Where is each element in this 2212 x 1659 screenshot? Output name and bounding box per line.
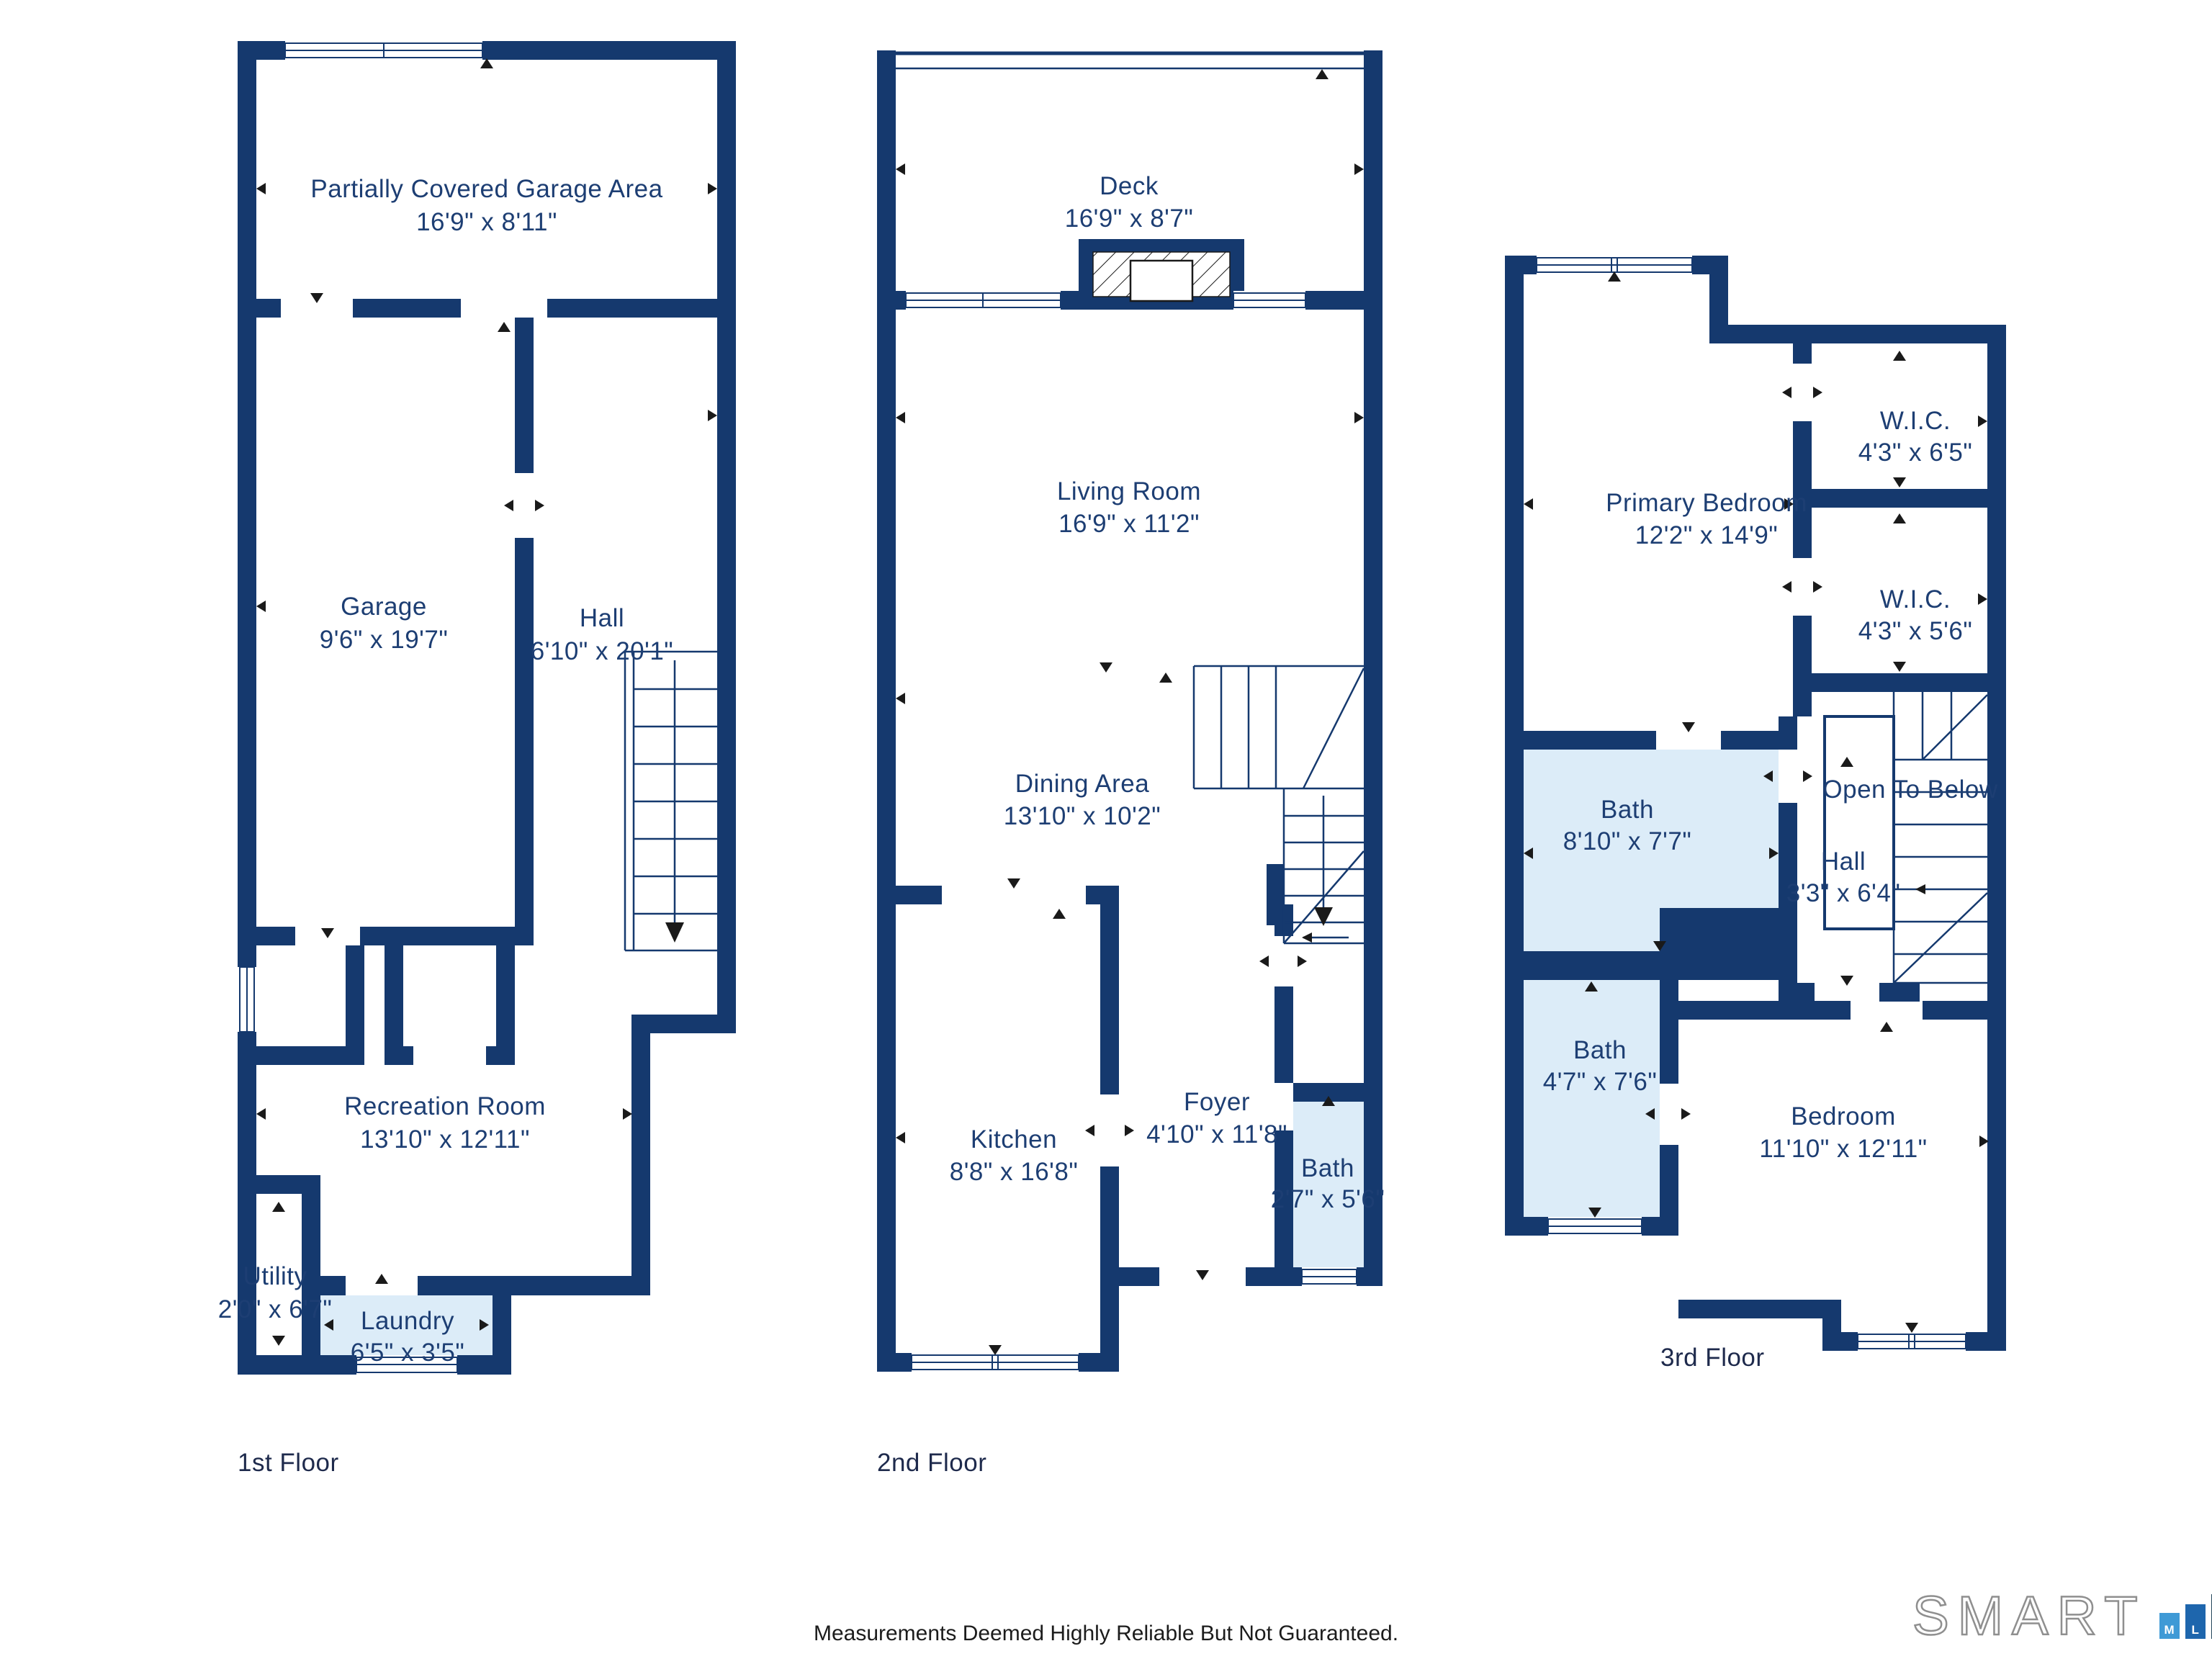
room-label-recreation-room: Recreation Room bbox=[344, 1092, 546, 1120]
floorplan-3rd-floor: Primary Bedroom 12'2" x 14'9" W.I.C. 4'3… bbox=[1505, 256, 2025, 1357]
room-label-bath-2nd: Bath bbox=[1301, 1154, 1354, 1182]
floorplan-2nd-floor: Deck 16'9" x 8'7" Living Room 16'9" x 11… bbox=[877, 50, 1382, 1375]
windows-1st bbox=[238, 41, 482, 1375]
room-dims-bedroom: 11'10" x 12'11" bbox=[1759, 1135, 1927, 1163]
room-label-partially-covered-garage-area: Partially Covered Garage Area bbox=[310, 175, 662, 203]
mls-box-m: M bbox=[2159, 1613, 2180, 1639]
room-label-dining-area: Dining Area bbox=[1015, 770, 1149, 798]
floorplan-1st-floor: Partially Covered Garage Area 16'9" x 8'… bbox=[238, 41, 736, 1377]
room-dims-primary-bedroom: 12'2" x 14'9" bbox=[1635, 521, 1778, 549]
room-dims-bath-2nd: 2'7" x 5'6" bbox=[1271, 1185, 1385, 1213]
room-dims-hall-3rd: 3'3" x 6'4" bbox=[1786, 879, 1901, 907]
walls-1st bbox=[238, 41, 736, 1375]
smart-mls-logo: SMART M L S bbox=[1912, 1594, 2212, 1639]
mls-box-l: L bbox=[2185, 1604, 2206, 1639]
room-label-hall-1st: Hall bbox=[580, 604, 624, 632]
stairs-left-arrow-icon bbox=[1915, 884, 1925, 894]
room-label-bath-lower: Bath bbox=[1573, 1036, 1627, 1064]
room-label-foyer: Foyer bbox=[1184, 1088, 1250, 1116]
room-dims-deck: 16'9" x 8'7" bbox=[1065, 204, 1194, 233]
room-label-bedroom: Bedroom bbox=[1791, 1102, 1896, 1130]
room-label-laundry: Laundry bbox=[361, 1307, 454, 1335]
room-labels-2nd: Deck 16'9" x 8'7" Living Room 16'9" x 11… bbox=[950, 172, 1385, 1213]
smart-logo-wordmark: SMART bbox=[1912, 1594, 2146, 1639]
floorplan-page: Partially Covered Garage Area 16'9" x 8'… bbox=[0, 0, 2212, 1659]
room-label-open-to-below: Open To Below bbox=[1822, 775, 1997, 804]
measurement-disclaimer: Measurements Deemed Highly Reliable But … bbox=[0, 1622, 2212, 1646]
room-dims-garage: 9'6" x 19'7" bbox=[320, 626, 449, 654]
room-dims-partially-covered-garage-area: 16'9" x 8'11" bbox=[416, 208, 557, 236]
room-dims-utility: 2'0" x 6'7" bbox=[218, 1295, 333, 1323]
stairs-down-arrow-icon bbox=[665, 922, 684, 943]
room-dims-bath-lower: 4'7" x 7'6" bbox=[1543, 1068, 1658, 1096]
room-fills-2nd bbox=[1293, 1102, 1364, 1267]
bath-2nd-fill bbox=[1293, 1102, 1364, 1267]
stairs-3rd-icon bbox=[1825, 692, 1987, 983]
room-dims-living-room: 16'9" x 11'2" bbox=[1058, 510, 1200, 538]
room-label-kitchen: Kitchen bbox=[971, 1125, 1057, 1154]
floor-label-2nd: 2nd Floor bbox=[877, 1449, 986, 1478]
room-label-hall-3rd: Hall bbox=[1821, 848, 1866, 876]
stairs-left-arrow-icon bbox=[1302, 932, 1312, 943]
room-dims-dining-area: 13'10" x 10'2" bbox=[1004, 802, 1161, 830]
fireplace-icon bbox=[1093, 252, 1230, 301]
room-dims-recreation-room: 13'10" x 12'11" bbox=[360, 1125, 530, 1154]
room-dims-bath-upper: 8'10" x 7'7" bbox=[1563, 827, 1692, 855]
deck-railing bbox=[877, 53, 1382, 68]
room-dims-wic-lower: 4'3" x 5'6" bbox=[1858, 617, 1973, 645]
room-label-garage: Garage bbox=[341, 593, 427, 621]
floor-label-3rd: 3rd Floor bbox=[1660, 1344, 1765, 1372]
room-label-wic-upper: W.I.C. bbox=[1880, 407, 1951, 435]
room-label-wic-lower: W.I.C. bbox=[1880, 585, 1951, 613]
room-label-primary-bedroom: Primary Bedroom bbox=[1606, 489, 1807, 517]
room-label-utility: Utility bbox=[243, 1262, 307, 1290]
room-dims-laundry: 6'5" x 3'5" bbox=[351, 1339, 465, 1367]
bath-lower-fill bbox=[1524, 980, 1660, 1217]
mls-logo-boxes: M L S bbox=[2154, 1594, 2212, 1639]
room-label-living-room: Living Room bbox=[1057, 477, 1201, 505]
room-label-bath-upper: Bath bbox=[1601, 796, 1654, 824]
room-dims-wic-upper: 4'3" x 6'5" bbox=[1858, 439, 1973, 467]
room-label-deck: Deck bbox=[1100, 172, 1159, 200]
room-dims-hall-1st: 6'10" x 20'1" bbox=[531, 637, 673, 665]
room-dims-kitchen: 8'8" x 16'8" bbox=[950, 1158, 1079, 1186]
stairs-1st-icon bbox=[625, 652, 717, 950]
floor-label-1st: 1st Floor bbox=[238, 1449, 339, 1478]
room-dims-foyer: 4'10" x 11'8" bbox=[1146, 1120, 1287, 1148]
